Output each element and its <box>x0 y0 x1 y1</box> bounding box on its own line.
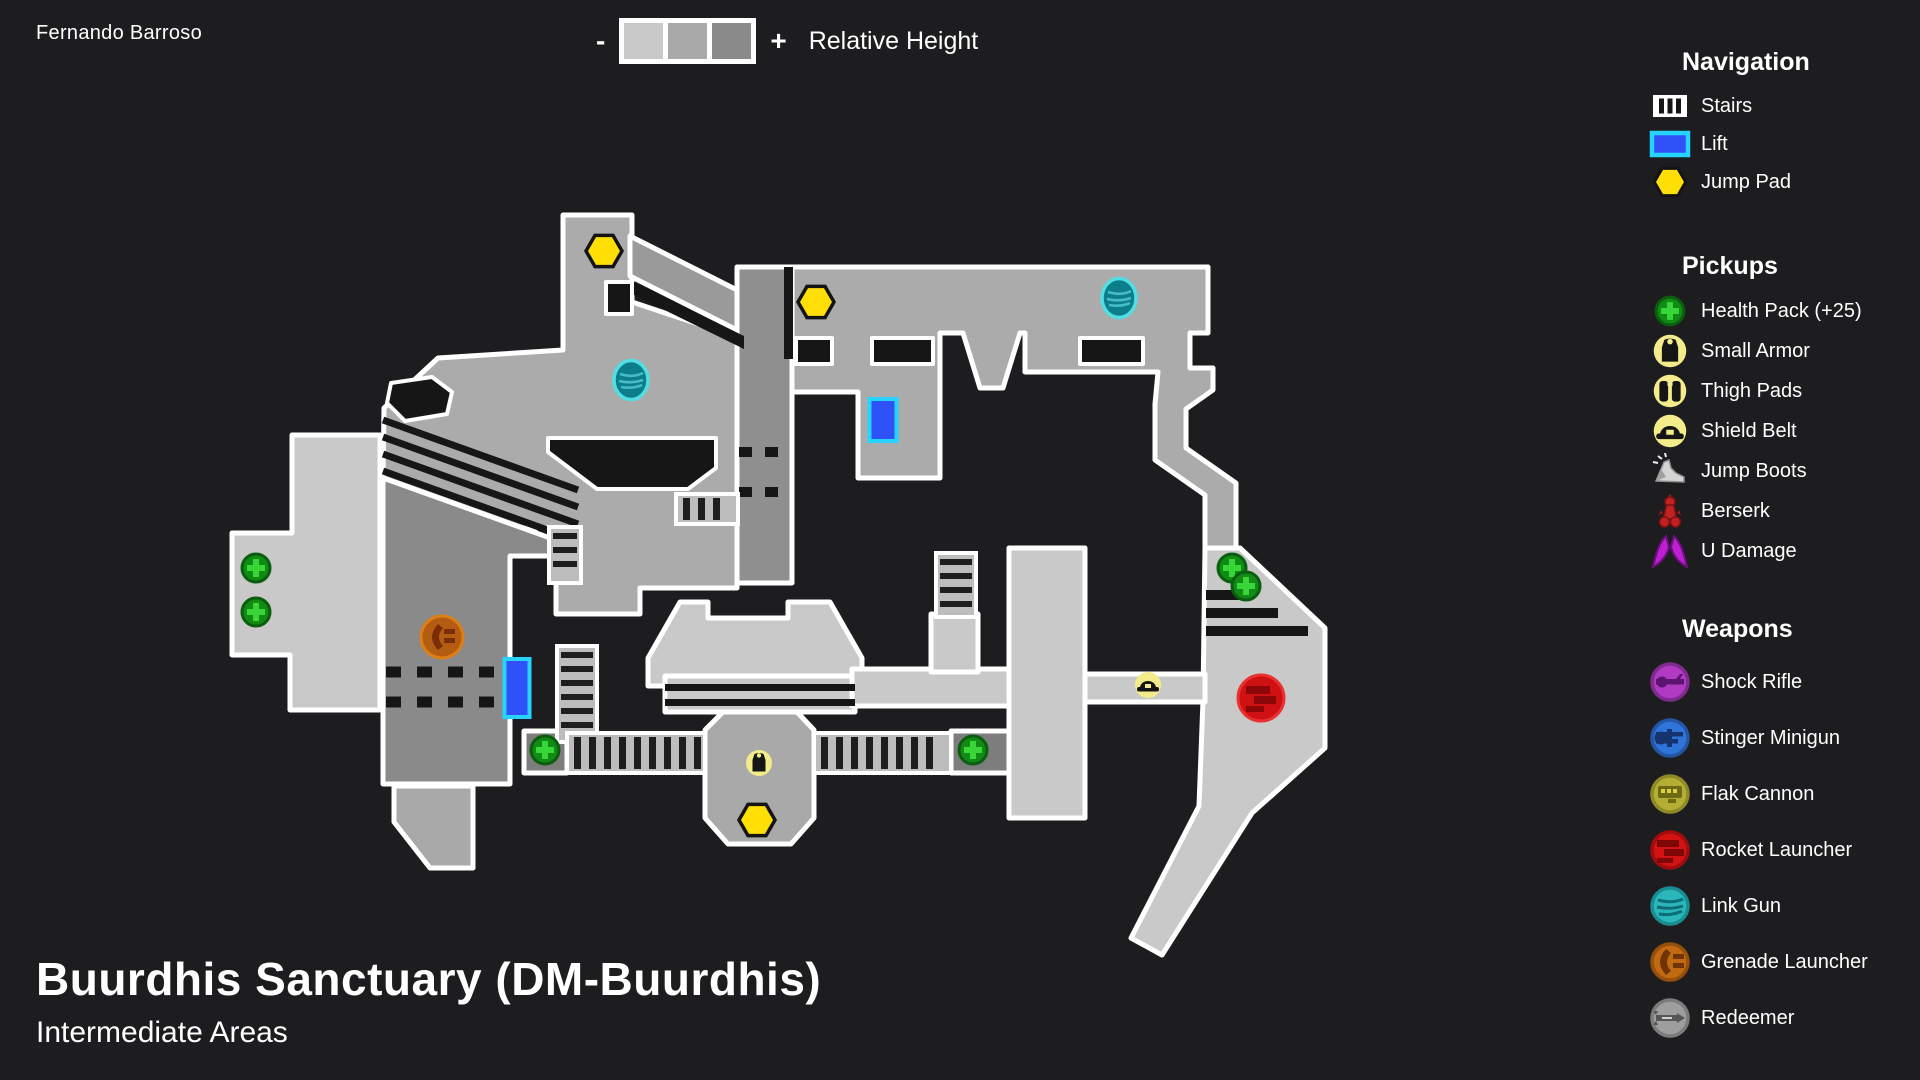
legend-item-berserk: Berserk <box>1648 491 1908 531</box>
grenade-launcher-icon <box>1649 941 1691 983</box>
health-pack-marker <box>531 736 559 764</box>
flak-cannon-icon <box>1649 773 1691 815</box>
legend-item-u-damage: U Damage <box>1648 531 1908 571</box>
lift-marker <box>870 399 897 441</box>
lift-marker <box>505 659 530 717</box>
redeemer-icon <box>1649 997 1691 1039</box>
map-room-tongue <box>394 786 473 868</box>
health-pack-marker <box>242 554 270 582</box>
navigation-section: Navigation Stairs Lift Jump Pad <box>1648 48 1908 201</box>
jump-pad-icon <box>1651 165 1689 199</box>
map-corridor-neck <box>931 614 978 672</box>
map-stairs <box>557 646 597 742</box>
map-stairs <box>567 733 705 773</box>
berserk-icon <box>1652 491 1688 531</box>
legend-item-link-gun: Link Gun <box>1648 878 1908 934</box>
height-minus-label: - <box>596 27 605 55</box>
height-swatch-mid <box>668 23 707 59</box>
rocket-launcher-icon <box>1649 829 1691 871</box>
map-canvas <box>0 0 1920 1080</box>
map-bridge <box>665 676 855 712</box>
jump-pad-marker <box>798 286 834 317</box>
page-title: Buurdhis Sanctuary (DM-Buurdhis) <box>36 952 821 1006</box>
relative-height-legend: - + Relative Height <box>596 18 978 64</box>
map-corridor-vertical <box>737 267 792 583</box>
pickups-title: Pickups <box>1682 252 1908 281</box>
rocket-launcher-marker <box>1238 675 1284 721</box>
legend-item-stinger-minigun: Stinger Minigun <box>1648 710 1908 766</box>
health-pack-marker <box>959 736 987 764</box>
stairs-icon <box>1652 94 1688 118</box>
weapons-section: Weapons Shock Rifle Stinger Minigun Flak… <box>1648 615 1908 1046</box>
legend-item-rocket-launcher: Rocket Launcher <box>1648 822 1908 878</box>
thigh-pads-icon <box>1652 373 1688 409</box>
height-legend-label: Relative Height <box>809 27 979 56</box>
lift-icon <box>1649 130 1691 158</box>
grenade-launcher-marker <box>421 616 463 658</box>
link-gun-icon <box>1649 885 1691 927</box>
small-armor-icon <box>1652 333 1688 369</box>
legend-item-stairs: Stairs <box>1648 87 1908 125</box>
legend-item-thigh-pads: Thigh Pads <box>1648 371 1908 411</box>
stinger-minigun-icon <box>1649 717 1691 759</box>
map-corridor-east <box>852 669 1012 706</box>
map-stairs <box>814 733 951 773</box>
legend-item-shield-belt: Shield Belt <box>1648 411 1908 451</box>
health-pack-marker <box>1232 572 1260 600</box>
health-pack-icon <box>1652 293 1688 329</box>
link-gun-marker <box>1102 279 1136 318</box>
link-gun-marker <box>614 361 648 400</box>
weapons-title: Weapons <box>1682 615 1908 644</box>
navigation-title: Navigation <box>1682 48 1908 77</box>
small-armor-marker <box>746 750 772 776</box>
u-damage-icon <box>1650 531 1690 571</box>
shield-belt-marker <box>1135 672 1161 698</box>
jump-pad-marker <box>586 235 622 266</box>
pickups-section: Pickups Health Pack (+25) Small Armor Th… <box>1648 252 1908 571</box>
map-title-block: Buurdhis Sanctuary (DM-Buurdhis) Interme… <box>36 952 821 1050</box>
map-stairs <box>676 494 738 524</box>
jump-boots-icon <box>1651 453 1689 489</box>
height-plus-label: + <box>770 27 786 55</box>
height-swatch-high <box>712 23 751 59</box>
map-band-top-right <box>792 267 1236 550</box>
legend-item-jump-pad: Jump Pad <box>1648 163 1908 201</box>
height-swatch-low <box>624 23 663 59</box>
map-stairs <box>549 527 581 583</box>
map-author: Fernando Barroso <box>36 22 202 45</box>
map-stairs <box>936 553 976 617</box>
legend-item-flak-cannon: Flak Cannon <box>1648 766 1908 822</box>
legend-item-small-armor: Small Armor <box>1648 331 1908 371</box>
shock-rifle-icon <box>1649 661 1691 703</box>
legend-item-health-pack: Health Pack (+25) <box>1648 291 1908 331</box>
legend-item-shock-rifle: Shock Rifle <box>1648 654 1908 710</box>
shield-belt-icon <box>1652 413 1688 449</box>
page-subtitle: Intermediate Areas <box>36 1016 821 1050</box>
map-platform-central <box>648 602 862 686</box>
jump-pad-marker <box>739 804 775 835</box>
legend-item-jump-boots: Jump Boots <box>1648 451 1908 491</box>
legend-item-lift: Lift <box>1648 125 1908 163</box>
legend-item-grenade-launcher: Grenade Launcher <box>1648 934 1908 990</box>
map-room-tall <box>1009 548 1085 818</box>
legend-item-redeemer: Redeemer <box>1648 990 1908 1046</box>
height-gradient <box>619 18 756 64</box>
health-pack-marker <box>242 598 270 626</box>
